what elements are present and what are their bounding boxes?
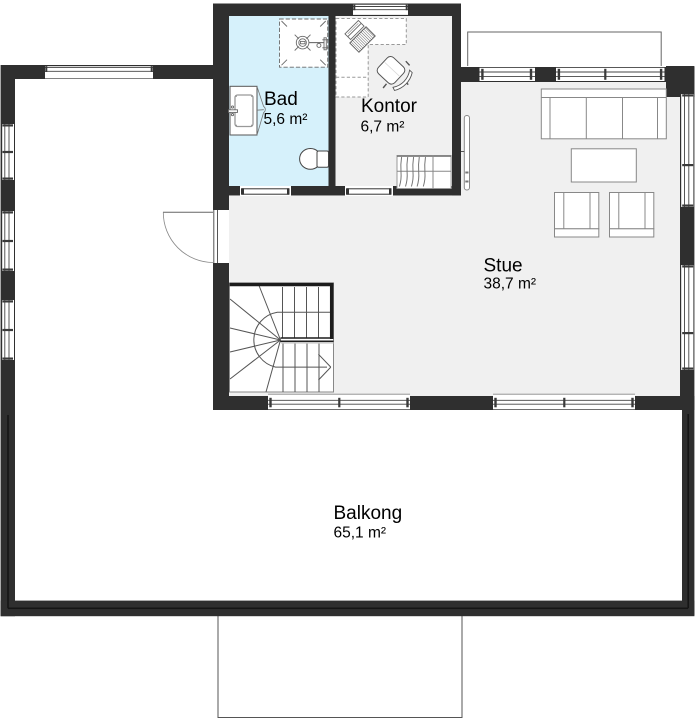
svg-text:65,1 m²: 65,1 m² <box>334 525 387 542</box>
svg-text:Bad: Bad <box>264 89 298 110</box>
svg-text:6,7 m²: 6,7 m² <box>361 119 405 136</box>
svg-text:Stue: Stue <box>484 256 523 277</box>
svg-text:38,7 m²: 38,7 m² <box>484 276 537 293</box>
svg-text:Balkong: Balkong <box>334 503 403 524</box>
svg-text:5,6 m²: 5,6 m² <box>264 111 308 128</box>
svg-text:Kontor: Kontor <box>361 96 418 117</box>
